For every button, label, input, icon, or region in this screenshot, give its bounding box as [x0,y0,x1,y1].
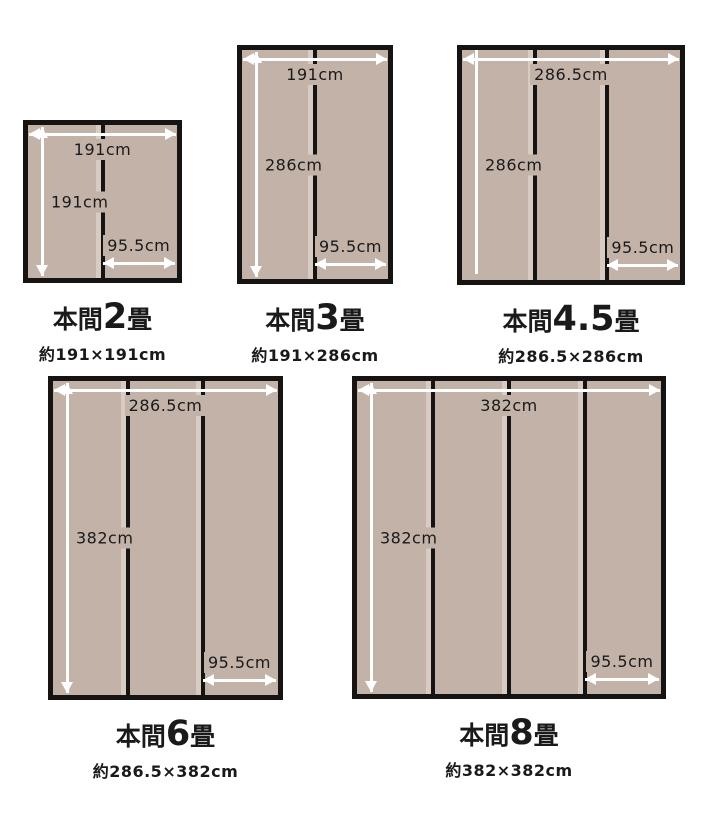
width-arrow-icon [29,133,176,136]
height-label: 382cm [72,529,137,548]
diagram-honma-3jo: 191cm 286cm 95.5cm 本間3畳 約191×286cm [237,45,393,366]
height-label: 191cm [47,192,112,211]
seam-label: 95.5cm [607,238,678,257]
tatami-size-chart: 191cm 191cm 95.5cm 本間2畳 約191×191cm 191cm… [0,0,720,817]
seam-label: 95.5cm [315,237,386,256]
seam-width-arrow-icon [103,262,176,265]
mat-rect: 382cm 382cm 95.5cm [352,376,666,699]
diagram-honma-6jo: 286.5cm 382cm 95.5cm 本間6畳 約286.5×382cm [48,376,283,782]
seam-width-arrow-icon [585,678,659,681]
height-label: 286cm [481,156,546,175]
seam-label: 95.5cm [103,236,176,255]
diagram-subtitle: 約191×191cm [23,341,182,365]
diagram-caption: 本間4.5畳 約286.5×286cm [457,298,685,367]
diagram-caption: 本間2畳 約191×191cm [23,296,182,365]
seam-label: 95.5cm [585,652,659,671]
width-label: 191cm [242,65,388,84]
diagram-title: 本間3畳 [237,297,393,341]
diagram-honma-2jo: 191cm 191cm 95.5cm 本間2畳 約191×191cm [23,120,182,365]
mat-seam-divider [502,381,511,694]
width-arrow-icon [358,389,660,392]
width-label: 191cm [28,140,177,159]
height-label: 286cm [261,155,326,174]
height-arrow-icon [370,383,373,692]
mat-rect: 191cm 191cm 95.5cm [23,120,182,283]
diagram-caption: 本間8畳 約382×382cm [352,712,666,781]
seam-width-arrow-icon [315,263,386,266]
diagram-title: 本間6畳 [48,713,283,757]
height-label: 382cm [376,528,441,547]
diagram-caption: 本間6畳 約286.5×382cm [48,713,283,782]
height-arrow-icon [66,383,69,693]
width-label: 382cm [357,396,661,415]
diagram-title: 本間8畳 [352,712,666,756]
width-arrow-icon [463,58,679,61]
mat-rect: 286.5cm 382cm 95.5cm [48,376,283,700]
seam-width-arrow-icon [607,264,678,267]
mat-seam-divider [196,381,205,695]
diagram-title: 本間4.5畳 [457,298,685,342]
mat-rect: 191cm 286cm 95.5cm [237,45,393,284]
height-arrow-icon [255,52,258,277]
diagram-subtitle: 約382×382cm [352,757,666,781]
width-arrow-icon [243,58,387,61]
width-arrow-icon [54,389,277,392]
diagram-caption: 本間3畳 約191×286cm [237,297,393,366]
mat-seam-divider [578,381,587,694]
diagram-honma-8jo: 382cm 382cm 95.5cm 本間8畳 約382×382cm [352,376,666,781]
mat-rect: 286.5cm 286cm 95.5cm [457,45,685,285]
diagram-subtitle: 約286.5×382cm [48,758,283,782]
width-label: 286.5cm [53,396,278,415]
diagram-subtitle: 約286.5×286cm [457,343,685,367]
seam-label: 95.5cm [203,653,276,672]
diagram-honma-4-5jo: 286.5cm 286cm 95.5cm 本間4.5畳 約286.5×286cm [457,45,685,367]
diagram-title: 本間2畳 [23,296,182,340]
seam-width-arrow-icon [203,679,276,682]
width-label: 286.5cm [462,65,680,84]
diagram-subtitle: 約191×286cm [237,342,393,366]
